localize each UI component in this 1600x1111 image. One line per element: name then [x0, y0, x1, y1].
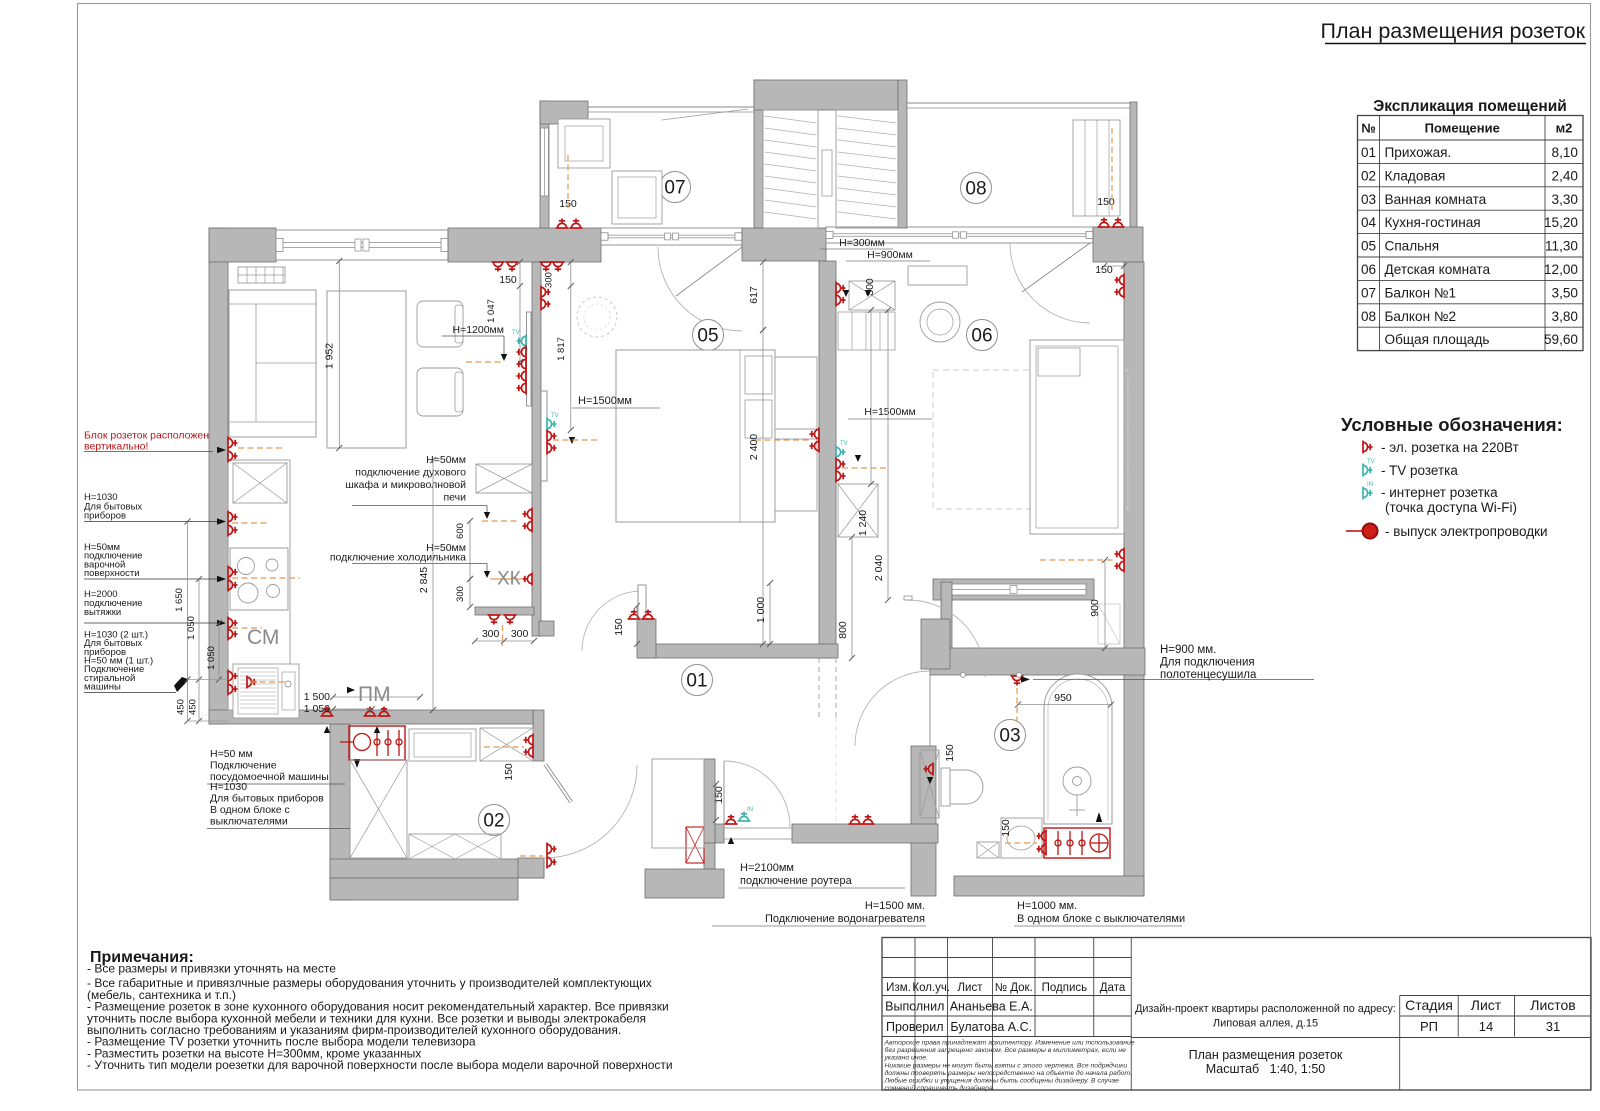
svg-text:Балкон №1: Балкон №1 — [1385, 285, 1457, 300]
svg-text:07: 07 — [664, 178, 685, 199]
svg-text:Дизайн-проект квартиры располо: Дизайн-проект квартиры расположенной по … — [1135, 1003, 1396, 1015]
svg-text:Детская комната: Детская комната — [1385, 262, 1491, 277]
svg-text:03: 03 — [1361, 192, 1376, 207]
svg-text:8,10: 8,10 — [1552, 145, 1579, 160]
svg-text:План размещения розеток: План размещения розеток — [1321, 19, 1586, 43]
svg-text:12,00: 12,00 — [1544, 262, 1578, 277]
svg-text:Масштаб 1:40, 1:50: Масштаб 1:40, 1:50 — [1206, 1062, 1326, 1076]
svg-text:шкафа и микроволновой: шкафа и микроволновой — [345, 479, 466, 491]
svg-text:- Все размеры и привязки уточн: - Все размеры и привязки уточнять на мес… — [87, 962, 336, 976]
svg-text:подключение роутера: подключение роутера — [740, 875, 853, 887]
svg-text:TV: TV — [1367, 459, 1375, 465]
svg-text:(точка доступа Wi-Fi): (точка доступа Wi-Fi) — [1385, 500, 1517, 515]
svg-text:- интернет розетка: - интернет розетка — [1381, 485, 1498, 500]
svg-text:TV: TV — [551, 413, 559, 419]
svg-text:14: 14 — [1479, 1019, 1493, 1034]
svg-text:300: 300 — [511, 628, 529, 640]
svg-text:подключение холодильника: подключение холодильника — [330, 552, 466, 564]
svg-text:1 817: 1 817 — [556, 337, 567, 361]
svg-text:1 240: 1 240 — [857, 510, 869, 536]
svg-text:Н=1500 мм.: Н=1500 мм. — [865, 900, 925, 912]
svg-text:Для бытовых приборов: Для бытовых приборов — [210, 793, 324, 805]
svg-text:Листов: Листов — [1530, 997, 1576, 1013]
svg-text:Дата: Дата — [1100, 982, 1126, 994]
svg-text:450: 450 — [188, 699, 199, 715]
svg-text:600: 600 — [455, 523, 466, 539]
svg-text:Н=50мм: Н=50мм — [426, 454, 466, 466]
svg-text:31: 31 — [1546, 1019, 1560, 1034]
svg-text:06: 06 — [971, 326, 992, 347]
svg-text:06: 06 — [1361, 262, 1376, 277]
svg-text:Помещение: Помещение — [1425, 121, 1500, 136]
svg-text:подключение духового: подключение духового — [355, 467, 466, 479]
svg-text:Кухня-гостиная: Кухня-гостиная — [1385, 215, 1481, 230]
svg-text:Н=1500мм: Н=1500мм — [864, 406, 916, 418]
svg-text:300: 300 — [864, 278, 876, 296]
svg-text:План размещения розеток: План размещения розеток — [1189, 1048, 1343, 1062]
svg-text:01: 01 — [1361, 145, 1376, 160]
svg-text:Для подключения: Для подключения — [1160, 657, 1255, 669]
svg-text:№ Док.: № Док. — [995, 982, 1033, 994]
svg-text:Подпись: Подпись — [1042, 982, 1088, 994]
svg-text:Ананьева Е.А.: Ананьева Е.А. — [950, 1000, 1033, 1014]
svg-text:печи: печи — [443, 492, 466, 504]
svg-text:05: 05 — [697, 326, 718, 347]
svg-text:1 050: 1 050 — [304, 703, 330, 715]
svg-text:08: 08 — [1361, 309, 1376, 324]
svg-text:- Уточнить тип модели роезетки: - Уточнить тип модели роезетки для вароч… — [87, 1058, 673, 1072]
svg-text:3,80: 3,80 — [1552, 309, 1579, 324]
svg-text:Никакие размеры не могут быть: Никакие размеры не могут быть взяты с эт… — [885, 1061, 1128, 1069]
svg-text:IN: IN — [1367, 482, 1373, 488]
svg-text:300: 300 — [482, 628, 500, 640]
svg-text:ХК: ХК — [497, 569, 521, 590]
svg-text:Н=300мм: Н=300мм — [839, 237, 885, 249]
svg-text:Проверил: Проверил — [886, 1020, 944, 1034]
svg-text:Условные обозначения:: Условные обозначения: — [1341, 414, 1563, 435]
svg-text:указано иное.: указано иное. — [884, 1055, 929, 1062]
svg-text:Н=1000 мм.: Н=1000 мм. — [1017, 900, 1077, 912]
svg-text:должны проверять размеры непос: должны проверять размеры непосредственно… — [885, 1069, 1133, 1077]
svg-text:Экспликация помещений: Экспликация помещений — [1373, 98, 1567, 115]
svg-text:02: 02 — [483, 811, 504, 832]
svg-text:2 845: 2 845 — [418, 567, 430, 593]
svg-text:поверхности: поверхности — [84, 568, 140, 579]
svg-text:1 952: 1 952 — [324, 343, 336, 369]
svg-text:Авторские права принадлежат ар: Авторские права принадлежат архитектору.… — [884, 1039, 1135, 1047]
svg-text:150: 150 — [503, 763, 515, 781]
svg-text:ПМ: ПМ — [358, 683, 391, 706]
svg-text:150: 150 — [713, 786, 725, 804]
svg-text:IN: IN — [747, 807, 753, 813]
svg-text:Спальня: Спальня — [1385, 239, 1440, 254]
svg-text:вытяжки: вытяжки — [84, 607, 121, 618]
svg-text:сомнений спрашивать дизайнера.: сомнений спрашивать дизайнера. — [885, 1084, 995, 1092]
svg-text:02: 02 — [1361, 168, 1376, 183]
svg-text:617: 617 — [748, 286, 760, 304]
svg-text:Прихожая.: Прихожая. — [1385, 145, 1452, 160]
svg-text:08: 08 — [965, 179, 986, 200]
svg-text:- эл. розетка на 220Вт: - эл. розетка на 220Вт — [1381, 440, 1519, 455]
svg-text:Липовая аллея, д.15: Липовая аллея, д.15 — [1213, 1018, 1318, 1030]
svg-text:1 650: 1 650 — [174, 588, 185, 612]
svg-text:150: 150 — [1000, 819, 1012, 837]
svg-text:Кол.уч.: Кол.уч. — [912, 982, 950, 994]
svg-text:800: 800 — [837, 621, 849, 639]
svg-text:Общая площадь: Общая площадь — [1385, 332, 1490, 347]
svg-text:3,50: 3,50 — [1552, 285, 1579, 300]
svg-text:450: 450 — [176, 699, 187, 715]
svg-text:1 000: 1 000 — [755, 597, 767, 623]
svg-text:м2: м2 — [1556, 121, 1573, 136]
svg-text:- TV розетка: - TV розетка — [1381, 463, 1458, 478]
svg-text:15,20: 15,20 — [1544, 215, 1578, 230]
svg-text:Ванная комната: Ванная комната — [1385, 192, 1487, 207]
svg-text:Н=1200мм: Н=1200мм — [452, 324, 504, 336]
svg-text:Выполнил: Выполнил — [885, 1000, 944, 1014]
svg-text:Н=900 мм.: Н=900 мм. — [1160, 644, 1216, 656]
svg-text:полотенцесушила: полотенцесушила — [1160, 669, 1257, 681]
svg-text:вертикально!: вертикально! — [84, 441, 148, 453]
svg-text:1 050: 1 050 — [206, 646, 217, 670]
svg-text:- выпуск электропроводки: - выпуск электропроводки — [1385, 524, 1548, 539]
svg-text:2 040: 2 040 — [873, 555, 885, 581]
svg-text:150: 150 — [613, 618, 625, 636]
svg-text:машины: машины — [84, 682, 121, 693]
svg-text:TV: TV — [840, 441, 848, 447]
svg-text:300: 300 — [544, 272, 555, 288]
svg-text:Лист: Лист — [1471, 997, 1502, 1013]
svg-text:без разрешения запрещено закон: без разрешения запрещено законом. Все ра… — [885, 1046, 1127, 1054]
svg-text:1 500: 1 500 — [304, 691, 330, 703]
svg-text:Н=1500мм: Н=1500мм — [578, 395, 632, 407]
svg-text:РП: РП — [1420, 1019, 1438, 1034]
svg-text:950: 950 — [1054, 692, 1072, 704]
svg-text:Подключение: Подключение — [210, 760, 277, 772]
svg-text:150: 150 — [944, 744, 956, 762]
svg-text:59,60: 59,60 — [1544, 332, 1578, 347]
svg-text:1 050: 1 050 — [186, 616, 197, 640]
svg-text:900: 900 — [1089, 599, 1101, 617]
svg-text:04: 04 — [1361, 215, 1377, 230]
svg-text:Любые ошибки и упущения должны: Любые ошибки и упущения должны быть сооб… — [884, 1077, 1120, 1085]
svg-text:2 400: 2 400 — [748, 434, 760, 460]
svg-text:В одном блоке с: В одном блоке с — [210, 804, 290, 816]
svg-text:3,30: 3,30 — [1552, 192, 1579, 207]
svg-text:11,30: 11,30 — [1545, 239, 1578, 254]
svg-text:Подключение водонагревателя: Подключение водонагревателя — [765, 913, 925, 925]
svg-text:Н=2100мм: Н=2100мм — [740, 862, 794, 874]
svg-text:В одном блоке с выключателями: В одном блоке с выключателями — [1017, 913, 1185, 925]
svg-text:Стадия: Стадия — [1405, 997, 1453, 1013]
svg-text:1 047: 1 047 — [486, 299, 497, 323]
svg-text:выключателями: выключателями — [210, 816, 288, 828]
svg-text:№: № — [1361, 121, 1376, 136]
svg-text:Н=1030: Н=1030 — [210, 781, 247, 793]
svg-text:Н=50 мм: Н=50 мм — [210, 748, 253, 760]
svg-text:Балкон №2: Балкон №2 — [1385, 309, 1457, 324]
svg-text:приборов: приборов — [84, 511, 126, 522]
svg-text:Лист: Лист — [958, 982, 984, 994]
svg-text:Н=900мм: Н=900мм — [867, 249, 913, 261]
svg-text:Изм.: Изм. — [886, 982, 911, 994]
svg-text:05: 05 — [1361, 239, 1376, 254]
svg-text:150: 150 — [499, 274, 517, 286]
svg-text:Кладовая: Кладовая — [1385, 168, 1446, 183]
svg-text:03: 03 — [999, 726, 1020, 747]
svg-text:2,40: 2,40 — [1552, 168, 1579, 183]
svg-text:СМ: СМ — [247, 626, 279, 649]
svg-text:Булатова А.С.: Булатова А.С. — [950, 1020, 1032, 1034]
svg-text:07: 07 — [1361, 285, 1376, 300]
svg-text:TV: TV — [512, 330, 520, 336]
svg-text:300: 300 — [455, 586, 466, 602]
svg-text:01: 01 — [686, 671, 707, 692]
